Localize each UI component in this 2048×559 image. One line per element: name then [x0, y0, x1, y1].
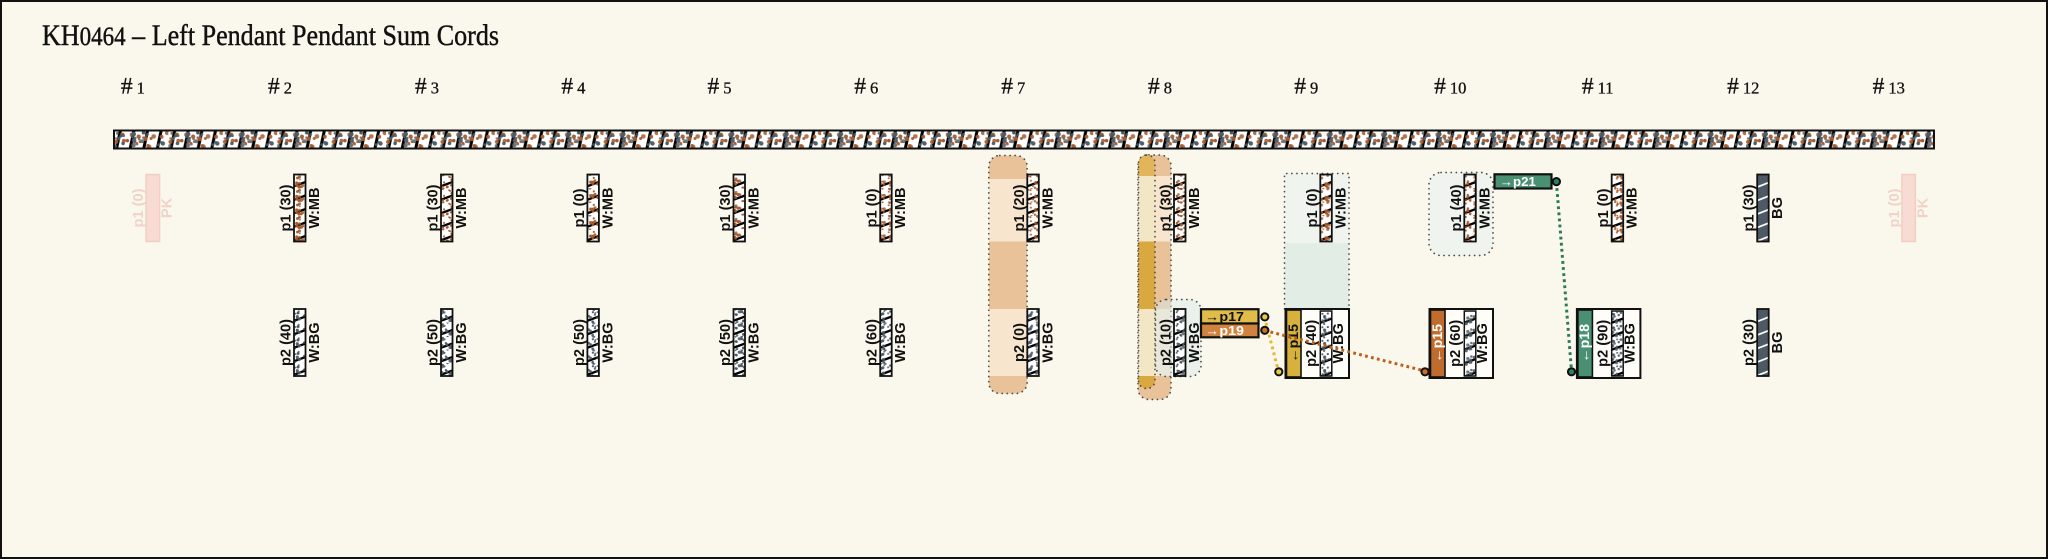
svg-text:PK: PK — [1915, 197, 1931, 218]
svg-text:BG: BG — [1770, 197, 1786, 219]
svg-text:W:MB: W:MB — [1477, 187, 1493, 228]
svg-text:p2 (50): p2 (50) — [572, 319, 588, 366]
svg-text:←p18: ←p18 — [1577, 324, 1593, 363]
svg-text:W:MB: W:MB — [747, 187, 763, 228]
svg-text:p1 (0): p1 (0) — [1305, 188, 1321, 227]
svg-text:p2 (60): p2 (60) — [865, 319, 881, 366]
svg-text:W:BG: W:BG — [1475, 323, 1491, 363]
svg-text:p1 (0): p1 (0) — [572, 188, 588, 227]
svg-text:p1 (30): p1 (30) — [279, 184, 295, 231]
svg-text:W:BG: W:BG — [600, 322, 616, 362]
svg-text:p2 (0): p2 (0) — [1012, 323, 1028, 362]
svg-text:W:MB: W:MB — [600, 187, 616, 228]
svg-text:p1 (0): p1 (0) — [1596, 188, 1612, 227]
svg-text:BG: BG — [1770, 332, 1786, 354]
svg-text:W:BG: W:BG — [454, 322, 470, 362]
svg-text:p1 (40): p1 (40) — [1449, 184, 1465, 231]
svg-text:PK: PK — [160, 197, 176, 218]
svg-text:→p17: →p17 — [1205, 309, 1244, 324]
svg-text:p2 (30): p2 (30) — [1742, 319, 1758, 366]
svg-text:p1 (20): p1 (20) — [1012, 184, 1028, 231]
svg-text:←p15: ←p15 — [1286, 324, 1302, 363]
svg-text:p2 (90): p2 (90) — [1596, 320, 1612, 367]
svg-text:p1 (0): p1 (0) — [865, 188, 881, 227]
svg-text:W:MB: W:MB — [1625, 187, 1641, 228]
svg-text:p2 (10): p2 (10) — [1159, 319, 1175, 366]
svg-text:p2 (60): p2 (60) — [1448, 320, 1464, 367]
svg-text:W:BG: W:BG — [747, 322, 763, 362]
svg-text:→p19: →p19 — [1205, 323, 1244, 338]
svg-text:p2 (50): p2 (50) — [718, 319, 734, 366]
svg-text:→p21: →p21 — [1500, 174, 1536, 189]
svg-text:p1 (30): p1 (30) — [1159, 184, 1175, 231]
svg-text:W:BG: W:BG — [307, 322, 323, 362]
svg-text:W:BG: W:BG — [1622, 323, 1638, 363]
svg-text:p1 (30): p1 (30) — [1742, 184, 1758, 231]
svg-text:p2 (40): p2 (40) — [279, 319, 295, 366]
svg-text:W:MB: W:MB — [1040, 187, 1056, 228]
svg-text:W:MB: W:MB — [1333, 187, 1349, 228]
svg-text:p1 (30): p1 (30) — [426, 184, 442, 231]
svg-text:p1 (0): p1 (0) — [1887, 188, 1903, 227]
svg-text:W:MB: W:MB — [893, 187, 909, 228]
svg-text:W:BG: W:BG — [1040, 322, 1056, 362]
svg-text:W:MB: W:MB — [1187, 187, 1203, 228]
svg-text:W:MB: W:MB — [454, 187, 470, 228]
svg-text:p1 (0): p1 (0) — [131, 188, 147, 227]
svg-text:p2 (50): p2 (50) — [426, 319, 442, 366]
svg-text:W:BG: W:BG — [1331, 323, 1347, 363]
svg-text:KH0464 – Left Pendant Pendant: KH0464 – Left Pendant Pendant Sum Cords — [42, 19, 499, 52]
svg-text:p1 (30): p1 (30) — [718, 184, 734, 231]
svg-text:W:MB: W:MB — [307, 187, 323, 228]
svg-text:W:BG: W:BG — [893, 322, 909, 362]
svg-text:←p15: ←p15 — [1430, 324, 1446, 363]
